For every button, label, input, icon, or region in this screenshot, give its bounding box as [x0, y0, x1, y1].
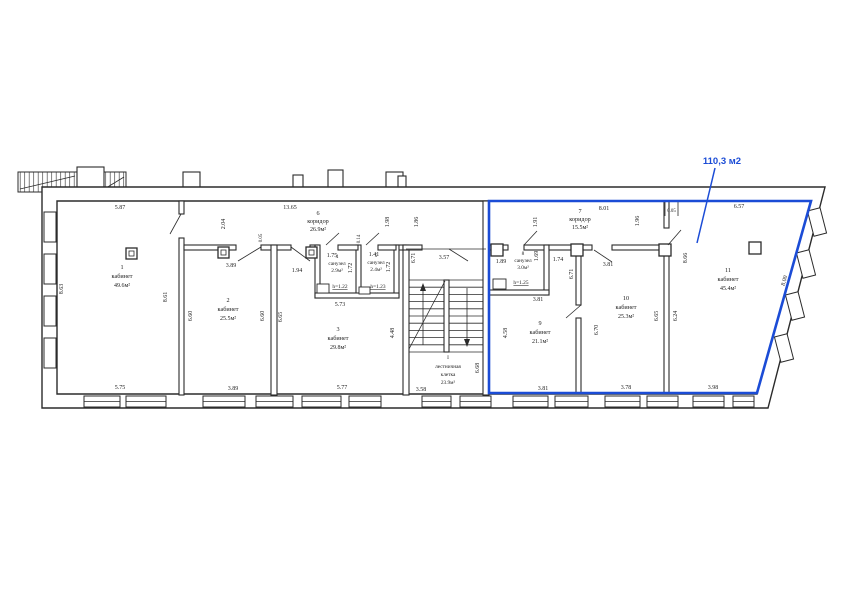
dim-label: 1.86: [414, 217, 420, 228]
dim-label: 1.74: [553, 257, 564, 263]
room-area: 25.3м²: [618, 314, 634, 320]
room-number: 3: [336, 326, 339, 333]
room-area: 26.9м²: [310, 227, 326, 233]
room-area: 23.9м²: [441, 380, 456, 386]
dim-label: 6.71: [569, 269, 575, 280]
interior-walls: [179, 201, 669, 395]
dim-label: 4.58: [503, 328, 509, 339]
dim-label: 3.57: [439, 255, 450, 261]
dim-label: 8.61: [163, 292, 169, 303]
room-number: I: [447, 355, 449, 361]
dim-label: 3.98: [708, 385, 719, 391]
room-name: кабинет: [218, 306, 239, 313]
room-name: коридор: [307, 218, 329, 225]
staircase: [406, 249, 486, 352]
dim-label: 3.81: [603, 262, 614, 268]
room-area: 15.5м²: [572, 225, 588, 231]
room-labels: 1 кабинет 49.6м² 2 кабинет 25.5м² 3 каби…: [112, 208, 739, 386]
dim-label: 6.57: [734, 204, 745, 210]
dim-label: 0.14: [357, 234, 362, 243]
dim-label: 1.94: [292, 268, 303, 274]
dim-label: 3.78: [621, 385, 632, 391]
room-name: лестничная: [435, 364, 461, 370]
dim-label: 4.48: [390, 328, 396, 339]
dim-label: 1.72: [386, 262, 392, 273]
roof-protrusions: [183, 170, 406, 188]
room-height-note: h=1.22: [332, 284, 347, 290]
dimension-labels: 5.87 13.65 8.01 6.57 0.05 2.04 1.98 1.86…: [59, 204, 789, 393]
room-number: 7: [578, 208, 581, 215]
dim-label: 8.63: [59, 284, 65, 295]
dim-label: 6.60: [188, 311, 194, 322]
dim-label: 6.60: [260, 311, 266, 322]
room-name: кабинет: [616, 304, 637, 311]
room-area: 25.5м²: [220, 316, 236, 322]
room-number: 1: [120, 264, 123, 271]
room-area: 49.6м²: [114, 283, 130, 289]
dim-label: 3.81: [533, 297, 544, 303]
dim-label: 5.75: [115, 385, 126, 391]
dim-label: 6.71: [411, 253, 417, 264]
room-height-note: h=1.25: [513, 280, 528, 286]
dim-label: 3.58: [416, 387, 427, 393]
room-area: 3.0м²: [517, 265, 529, 271]
room-name: санузел: [514, 258, 532, 264]
room-area: 21.1м²: [532, 339, 548, 345]
dim-label: 1.96: [635, 216, 641, 227]
door-swings: [170, 201, 681, 318]
room-name: санузел: [328, 261, 346, 267]
dim-label: 1.72: [348, 263, 354, 274]
room-height-note: h=1.23: [370, 284, 385, 290]
room-name: клетка: [441, 372, 456, 378]
room-area: 45.4м²: [720, 286, 736, 292]
room-name: санузел: [367, 260, 385, 266]
room-number: 8: [522, 251, 525, 257]
dim-label: 6.65: [654, 311, 660, 322]
dim-label: 2.04: [221, 219, 227, 230]
dim-label: 6.68: [475, 363, 481, 374]
dim-label: 3.89: [228, 386, 239, 392]
dim-label: 1.89: [496, 259, 507, 265]
dim-label: 6.24: [673, 311, 679, 322]
dim-label: 1.98: [385, 217, 391, 228]
dim-label: 5.73: [335, 302, 346, 308]
room-number: 5: [375, 253, 378, 259]
dim-label: 6.70: [594, 325, 600, 336]
dim-label: 3.81: [538, 386, 549, 392]
floor-plan: 5.87 13.65 8.01 6.57 0.05 2.04 1.98 1.86…: [0, 0, 842, 595]
room-area: 2.4м²: [370, 267, 382, 273]
dim-label: 0.05: [259, 233, 264, 242]
room-name: кабинет: [530, 329, 551, 336]
room-number: 10: [623, 295, 629, 302]
highlight-leader-line: [697, 168, 715, 243]
stair-arrow-down: [464, 339, 470, 347]
dim-label: 5.87: [115, 205, 126, 211]
dim-label: 0.05: [667, 209, 676, 214]
room-name: коридор: [569, 216, 591, 223]
room-number: 6: [316, 210, 319, 217]
highlight-area-label: 110,3 м2: [703, 156, 741, 167]
outer-walls: [42, 187, 825, 408]
room-number: 2: [226, 297, 229, 304]
room-number: 4: [336, 254, 339, 260]
dim-label: 6.65: [278, 312, 284, 323]
room-number: 11: [725, 267, 731, 274]
room-area: 29.8м²: [330, 345, 346, 351]
dim-label: 13.65: [283, 205, 297, 211]
dim-label: 3.89: [226, 263, 237, 269]
room-name: кабинет: [328, 335, 349, 342]
dim-label: 5.77: [337, 385, 348, 391]
room-name: кабинет: [112, 273, 133, 280]
dim-label: 1.69: [534, 251, 540, 262]
room-number: 9: [538, 320, 541, 327]
room-area: 2.9м²: [331, 268, 343, 274]
dim-label: 1.91: [533, 217, 539, 228]
room-name: кабинет: [718, 276, 739, 283]
dim-label: 8.01: [599, 206, 610, 212]
floor-plan-canvas: 5.87 13.65 8.01 6.57 0.05 2.04 1.98 1.86…: [0, 0, 842, 595]
dim-label: 8.66: [683, 253, 689, 264]
